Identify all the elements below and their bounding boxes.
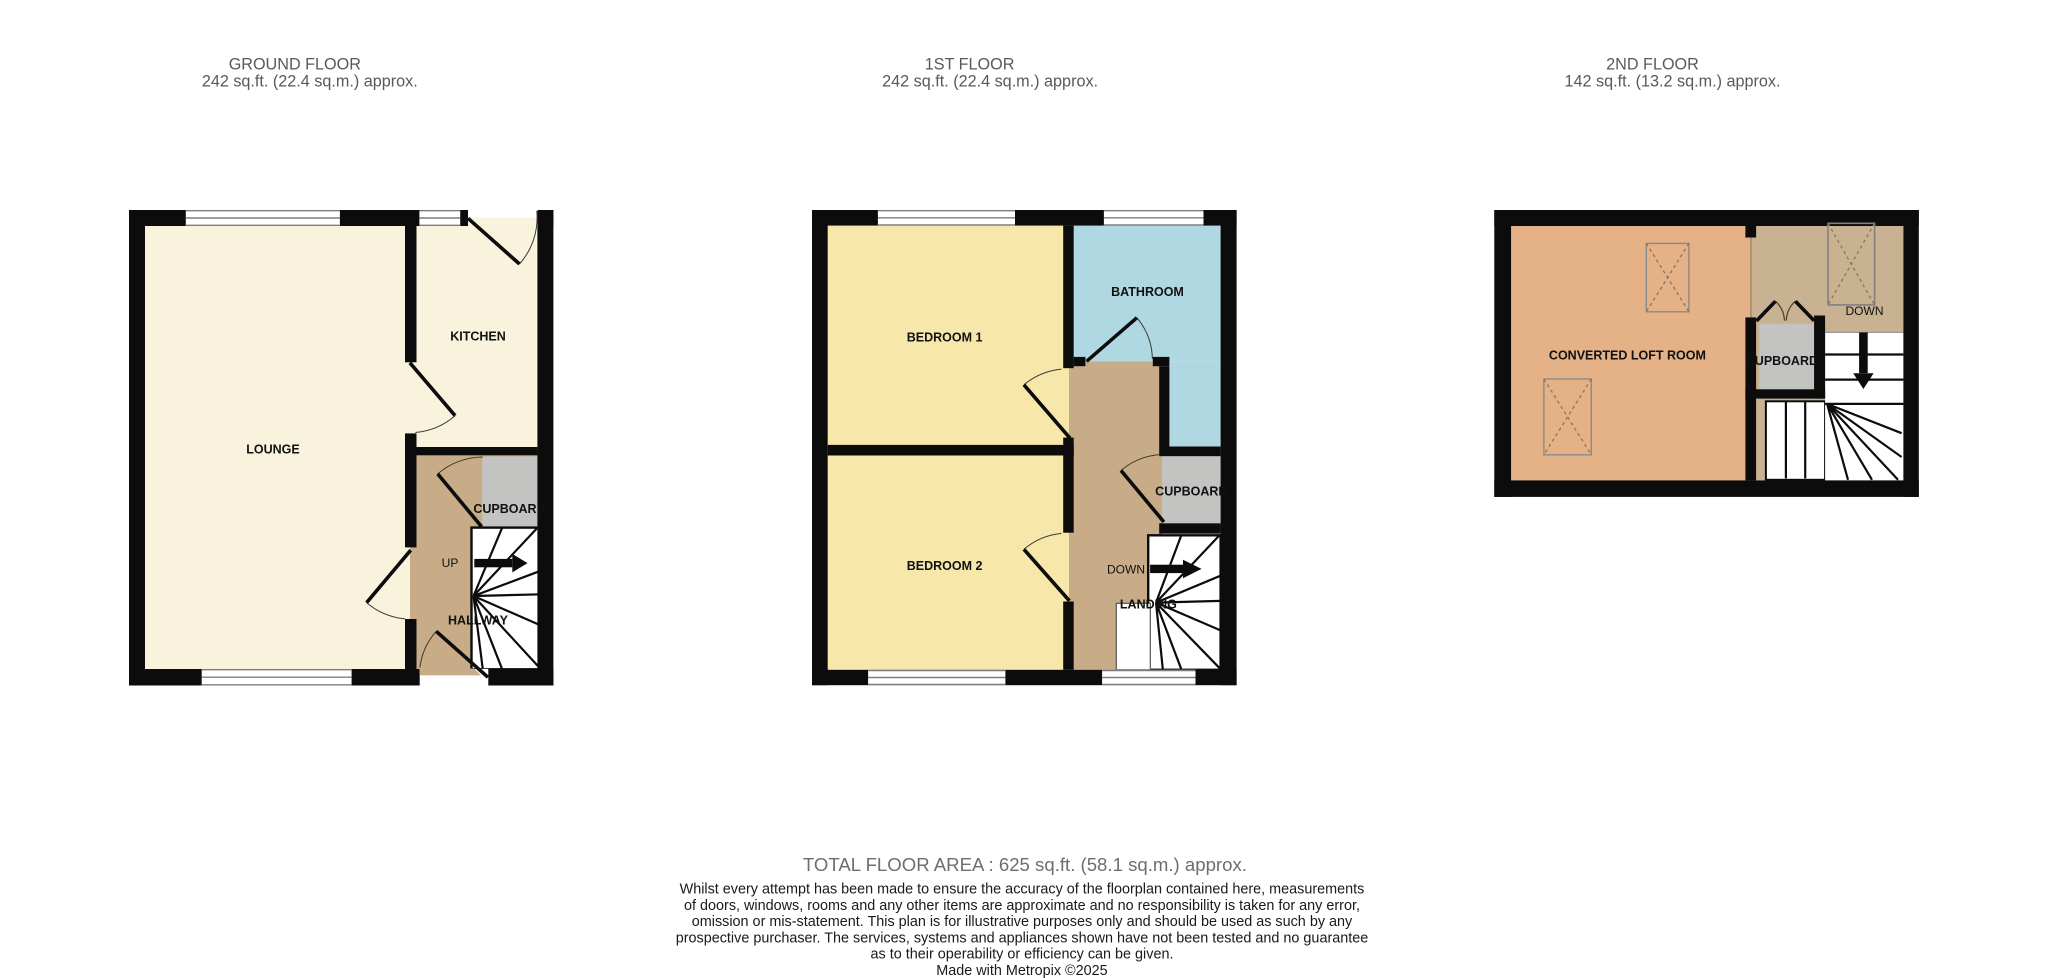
svg-text:2ND FLOOR: 2ND FLOOR — [1606, 56, 1699, 74]
svg-text:242 sq.ft. (22.4 sq.m.) approx: 242 sq.ft. (22.4 sq.m.) approx. — [882, 73, 1098, 91]
svg-text:of doors, windows, rooms and a: of doors, windows, rooms and any other i… — [684, 898, 1360, 914]
svg-text:242 sq.ft. (22.4 sq.m.) approx: 242 sq.ft. (22.4 sq.m.) approx. — [202, 73, 418, 91]
svg-text:CUPBOARD: CUPBOARD — [1746, 354, 1818, 368]
svg-text:CUPBOARD: CUPBOARD — [1155, 485, 1227, 499]
svg-text:LOUNGE: LOUNGE — [246, 443, 299, 457]
svg-text:prospective purchaser. The ser: prospective purchaser. The services, sys… — [676, 930, 1369, 946]
svg-text:CUPBOARD: CUPBOARD — [473, 502, 545, 516]
svg-text:Made with Metropix ©2025: Made with Metropix ©2025 — [936, 963, 1107, 978]
svg-text:BEDROOM 1: BEDROOM 1 — [907, 330, 983, 344]
svg-text:LANDING: LANDING — [1120, 598, 1177, 612]
svg-text:GROUND FLOOR: GROUND FLOOR — [229, 56, 361, 74]
svg-text:UP: UP — [442, 556, 459, 570]
svg-text:BEDROOM 2: BEDROOM 2 — [907, 559, 983, 573]
svg-text:KITCHEN: KITCHEN — [450, 330, 506, 344]
svg-text:Whilst every attempt has been: Whilst every attempt has been made to en… — [680, 882, 1365, 898]
svg-text:HALLWAY: HALLWAY — [448, 614, 509, 628]
svg-text:142 sq.ft. (13.2 sq.m.) approx: 142 sq.ft. (13.2 sq.m.) approx. — [1565, 73, 1781, 91]
svg-text:as to their operability or eff: as to their operability or efficiency ca… — [871, 947, 1174, 963]
svg-text:CONVERTED LOFT ROOM: CONVERTED LOFT ROOM — [1549, 348, 1706, 362]
svg-text:DOWN: DOWN — [1107, 563, 1145, 577]
svg-text:BATHROOM: BATHROOM — [1111, 285, 1184, 299]
svg-text:DOWN: DOWN — [1846, 304, 1884, 318]
svg-text:omission or mis-statement. Thi: omission or mis-statement. This plan is … — [692, 914, 1353, 930]
svg-text:1ST FLOOR: 1ST FLOOR — [925, 56, 1015, 74]
svg-text:TOTAL FLOOR AREA : 625 sq.ft.: TOTAL FLOOR AREA : 625 sq.ft. (58.1 sq.m… — [803, 854, 1247, 875]
